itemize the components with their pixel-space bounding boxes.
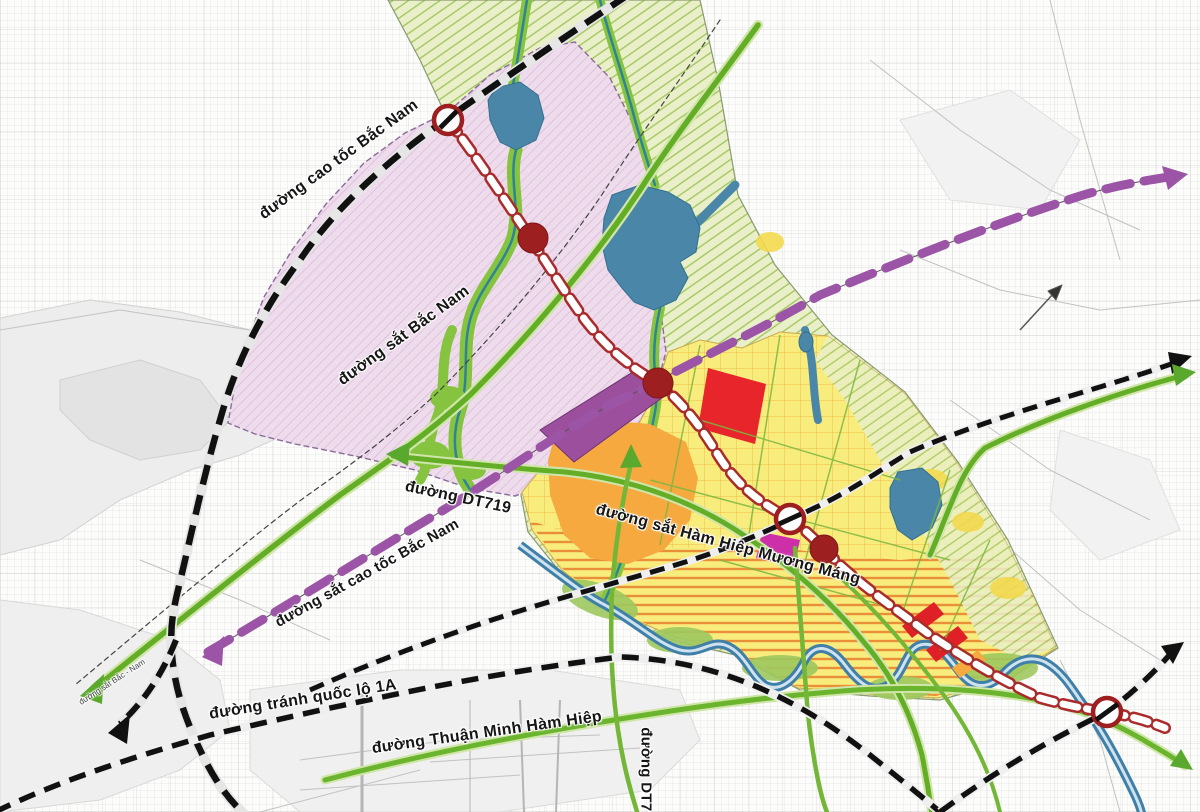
label-road-dt718: đường DT718 xyxy=(638,727,655,812)
cadastral-arrow-icon xyxy=(1020,285,1062,330)
map-canvas xyxy=(0,0,1200,812)
hsr-arrow-ne-icon xyxy=(1162,166,1188,190)
planning-map: đường cao tốc Bắc Nam đường sắt Bắc Nam … xyxy=(0,0,1200,812)
green-arrow-ne-icon xyxy=(1172,364,1196,386)
